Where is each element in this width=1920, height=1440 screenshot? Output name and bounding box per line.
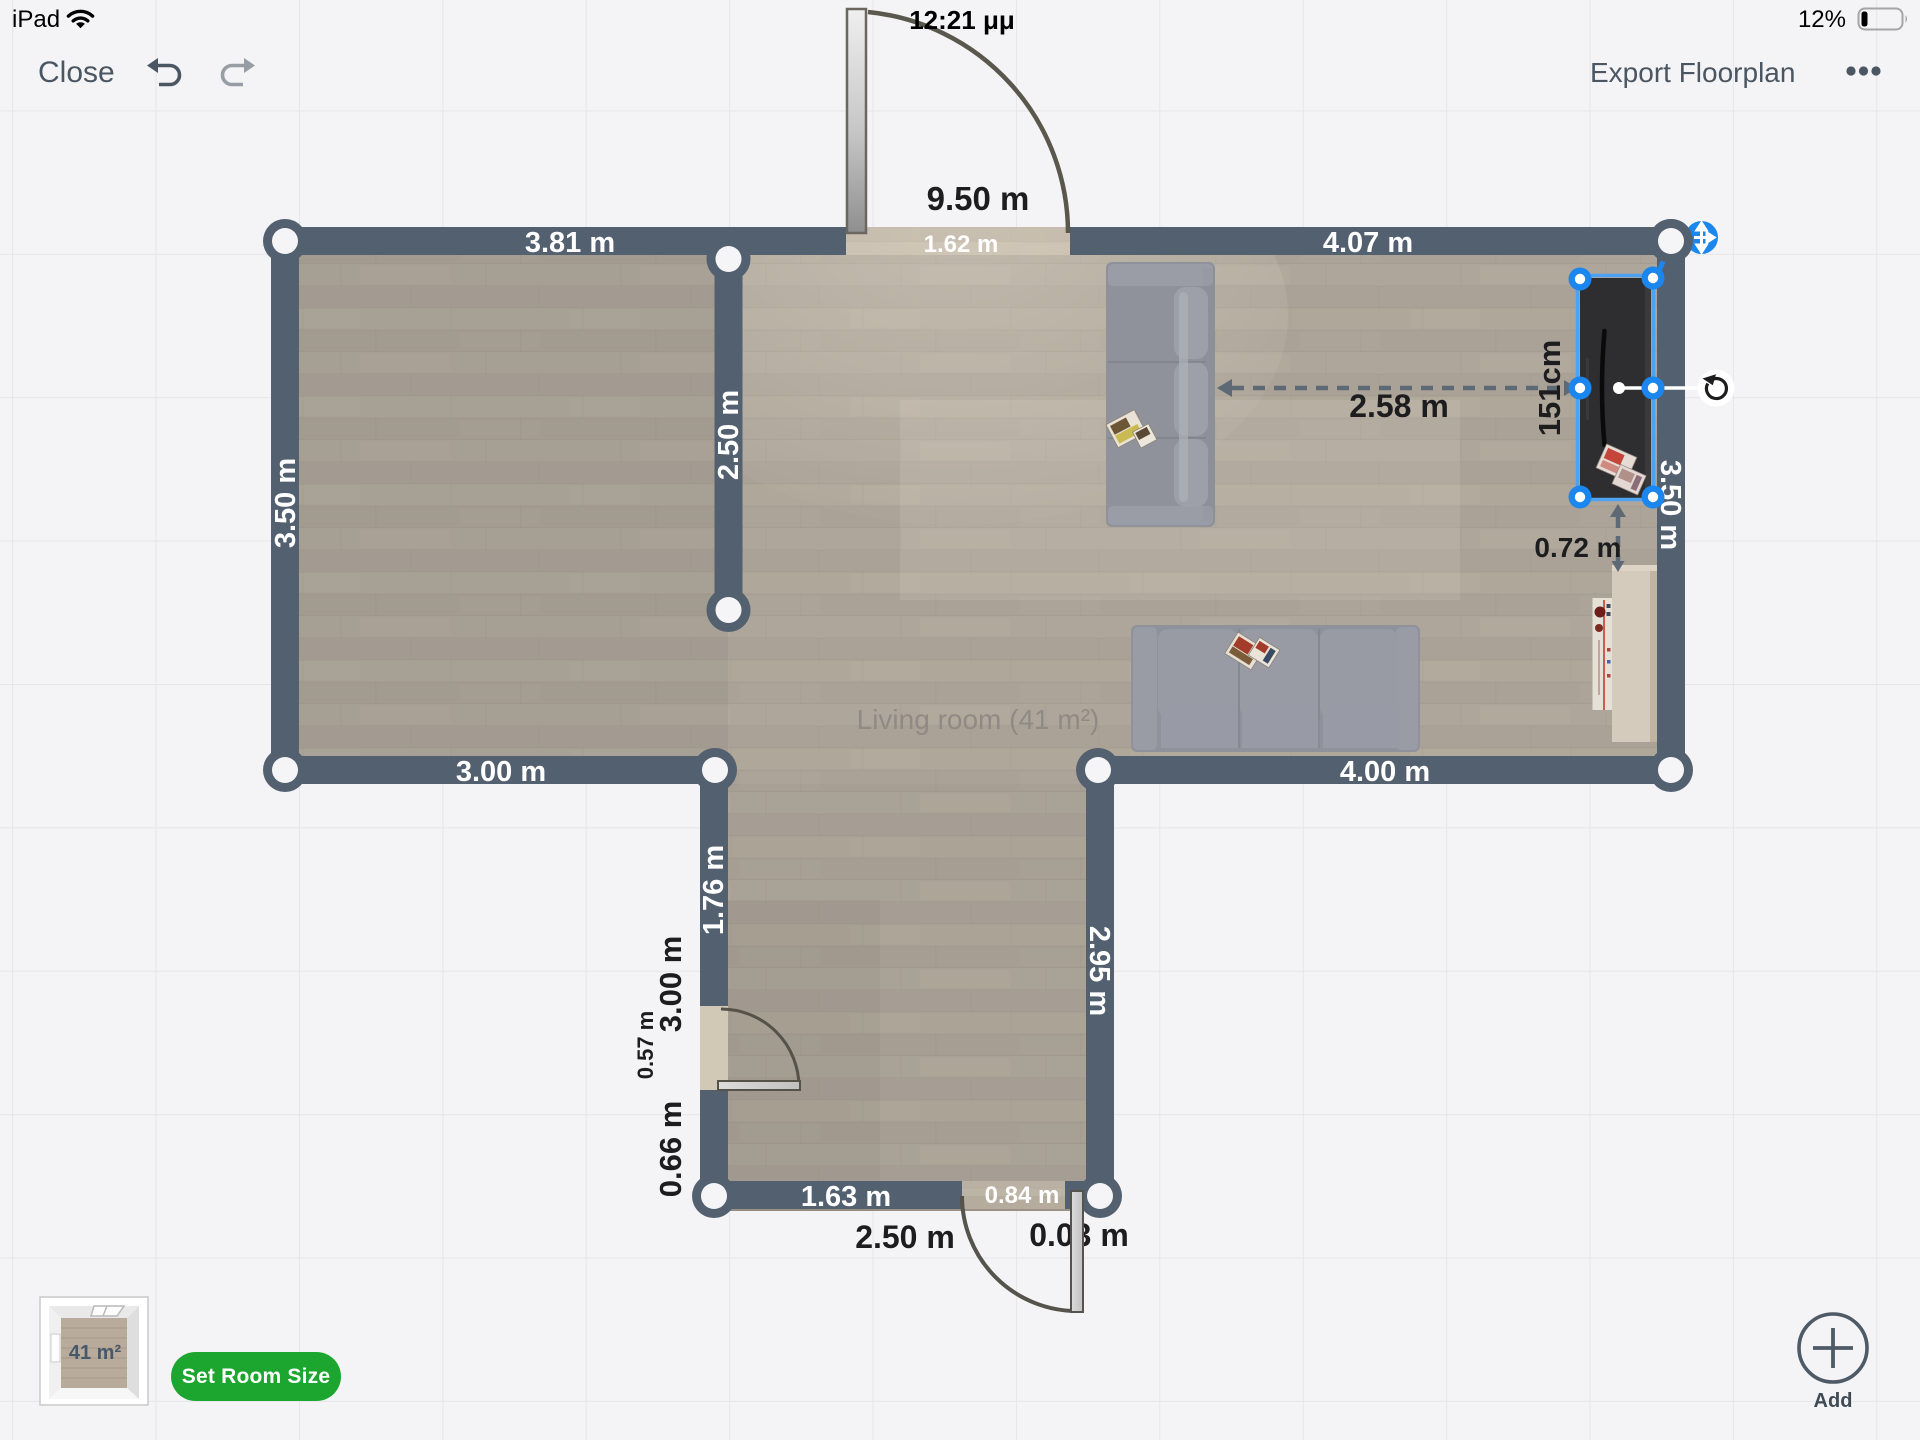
svg-text:4.00 m: 4.00 m [1340, 756, 1430, 788]
svg-text:41 m²: 41 m² [69, 1342, 122, 1364]
svg-text:2.50 m: 2.50 m [855, 1219, 955, 1255]
svg-text:9.50 m: 9.50 m [927, 180, 1030, 217]
svg-text:2.95 m: 2.95 m [1083, 926, 1115, 1016]
svg-text:0.66 m: 0.66 m [653, 1101, 688, 1198]
svg-text:Add: Add [1814, 1390, 1853, 1412]
svg-text:1.62 m: 1.62 m [924, 231, 999, 258]
svg-text:3.81 m: 3.81 m [525, 227, 615, 259]
svg-text:1.76 m: 1.76 m [698, 845, 730, 935]
svg-text:1.63 m: 1.63 m [801, 1181, 891, 1213]
svg-text:3.50 m: 3.50 m [270, 458, 302, 548]
svg-text:2.50 m: 2.50 m [713, 390, 745, 480]
svg-text:Living room (41 m²): Living room (41 m²) [857, 704, 1100, 735]
svg-text:0.72 m: 0.72 m [1534, 532, 1621, 563]
svg-text:3.00 m: 3.00 m [456, 756, 546, 788]
svg-text:3.00 m: 3.00 m [653, 936, 688, 1033]
svg-text:4.07 m: 4.07 m [1323, 227, 1413, 259]
svg-text:0.84 m: 0.84 m [985, 1182, 1060, 1209]
svg-text:0.57 m: 0.57 m [633, 1011, 658, 1080]
svg-text:2.58 m: 2.58 m [1349, 388, 1449, 424]
svg-text:151cm: 151cm [1532, 340, 1567, 437]
